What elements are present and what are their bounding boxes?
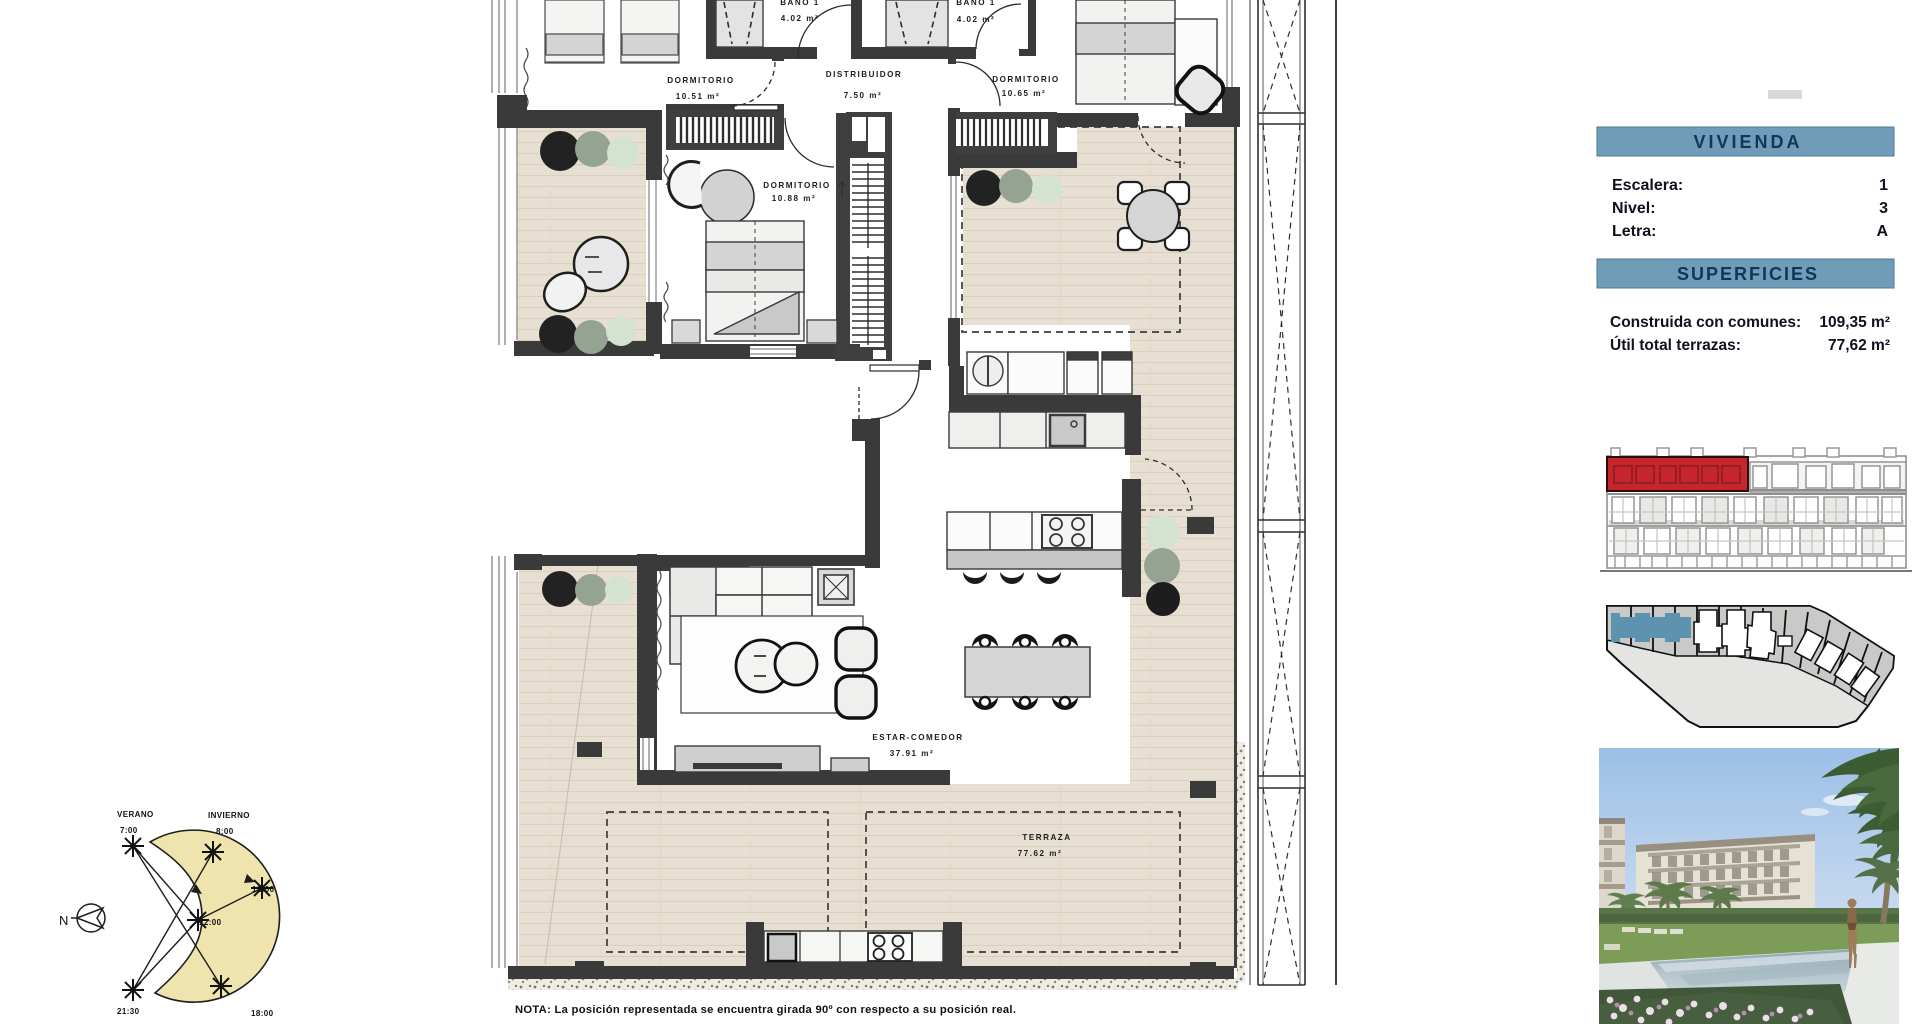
- svg-text:18:00: 18:00: [251, 1009, 274, 1018]
- svg-text:109,35 m²: 109,35 m²: [1819, 314, 1890, 331]
- svg-text:8:00: 8:00: [216, 827, 234, 836]
- svg-text:A: A: [1876, 223, 1888, 240]
- svg-text:VERANO: VERANO: [117, 810, 154, 819]
- svg-text:ESTAR-COMEDOR: ESTAR-COMEDOR: [872, 733, 963, 742]
- svg-text:7.50 m²: 7.50 m²: [844, 91, 882, 100]
- svg-text:77,62 m²: 77,62 m²: [1828, 337, 1890, 354]
- svg-text:Construida con comunes:: Construida con comunes:: [1610, 314, 1801, 331]
- svg-text:Escalera:: Escalera:: [1612, 177, 1683, 194]
- svg-text:10.65 m²: 10.65 m²: [1002, 89, 1046, 98]
- svg-text:7:00: 7:00: [120, 826, 138, 835]
- svg-text:INVIERNO: INVIERNO: [208, 811, 250, 820]
- svg-text:21:30: 21:30: [117, 1007, 140, 1016]
- svg-text:DORMITORIO: DORMITORIO: [667, 76, 734, 85]
- svg-text:12:00: 12:00: [199, 918, 222, 927]
- svg-text:VIVIENDA: VIVIENDA: [1693, 132, 1802, 152]
- svg-text:1: 1: [1879, 177, 1888, 194]
- svg-text:TERRAZA: TERRAZA: [1022, 833, 1071, 842]
- svg-text:Nivel:: Nivel:: [1612, 200, 1656, 217]
- svg-text:DISTRIBUIDOR: DISTRIBUIDOR: [826, 70, 902, 79]
- svg-text:4.02 m²: 4.02 m²: [957, 15, 995, 24]
- svg-text:Útil total terrazas:: Útil total terrazas:: [1610, 336, 1741, 354]
- svg-text:10.51 m²: 10.51 m²: [676, 92, 720, 101]
- svg-text:10.88 m²: 10.88 m²: [772, 194, 816, 203]
- svg-text:4.02 m²: 4.02 m²: [781, 14, 819, 23]
- svg-text:3: 3: [1879, 200, 1888, 217]
- svg-text:Letra:: Letra:: [1612, 223, 1656, 240]
- svg-text:N: N: [59, 913, 68, 928]
- svg-text:37.91 m²: 37.91 m²: [890, 749, 934, 758]
- svg-text:NOTA: La posición representada: NOTA: La posición representada se encuen…: [515, 1004, 1016, 1016]
- svg-text:SUPERFICIES: SUPERFICIES: [1677, 264, 1819, 284]
- svg-text:77.62 m²: 77.62 m²: [1018, 849, 1062, 858]
- svg-text:12:00: 12:00: [252, 885, 275, 894]
- svg-text:DORMITORIO: DORMITORIO: [763, 181, 830, 190]
- svg-text:BAÑO 1: BAÑO 1: [780, 0, 820, 7]
- svg-text:BAÑO 1: BAÑO 1: [956, 0, 996, 7]
- svg-text:DORMITORIO: DORMITORIO: [992, 75, 1059, 84]
